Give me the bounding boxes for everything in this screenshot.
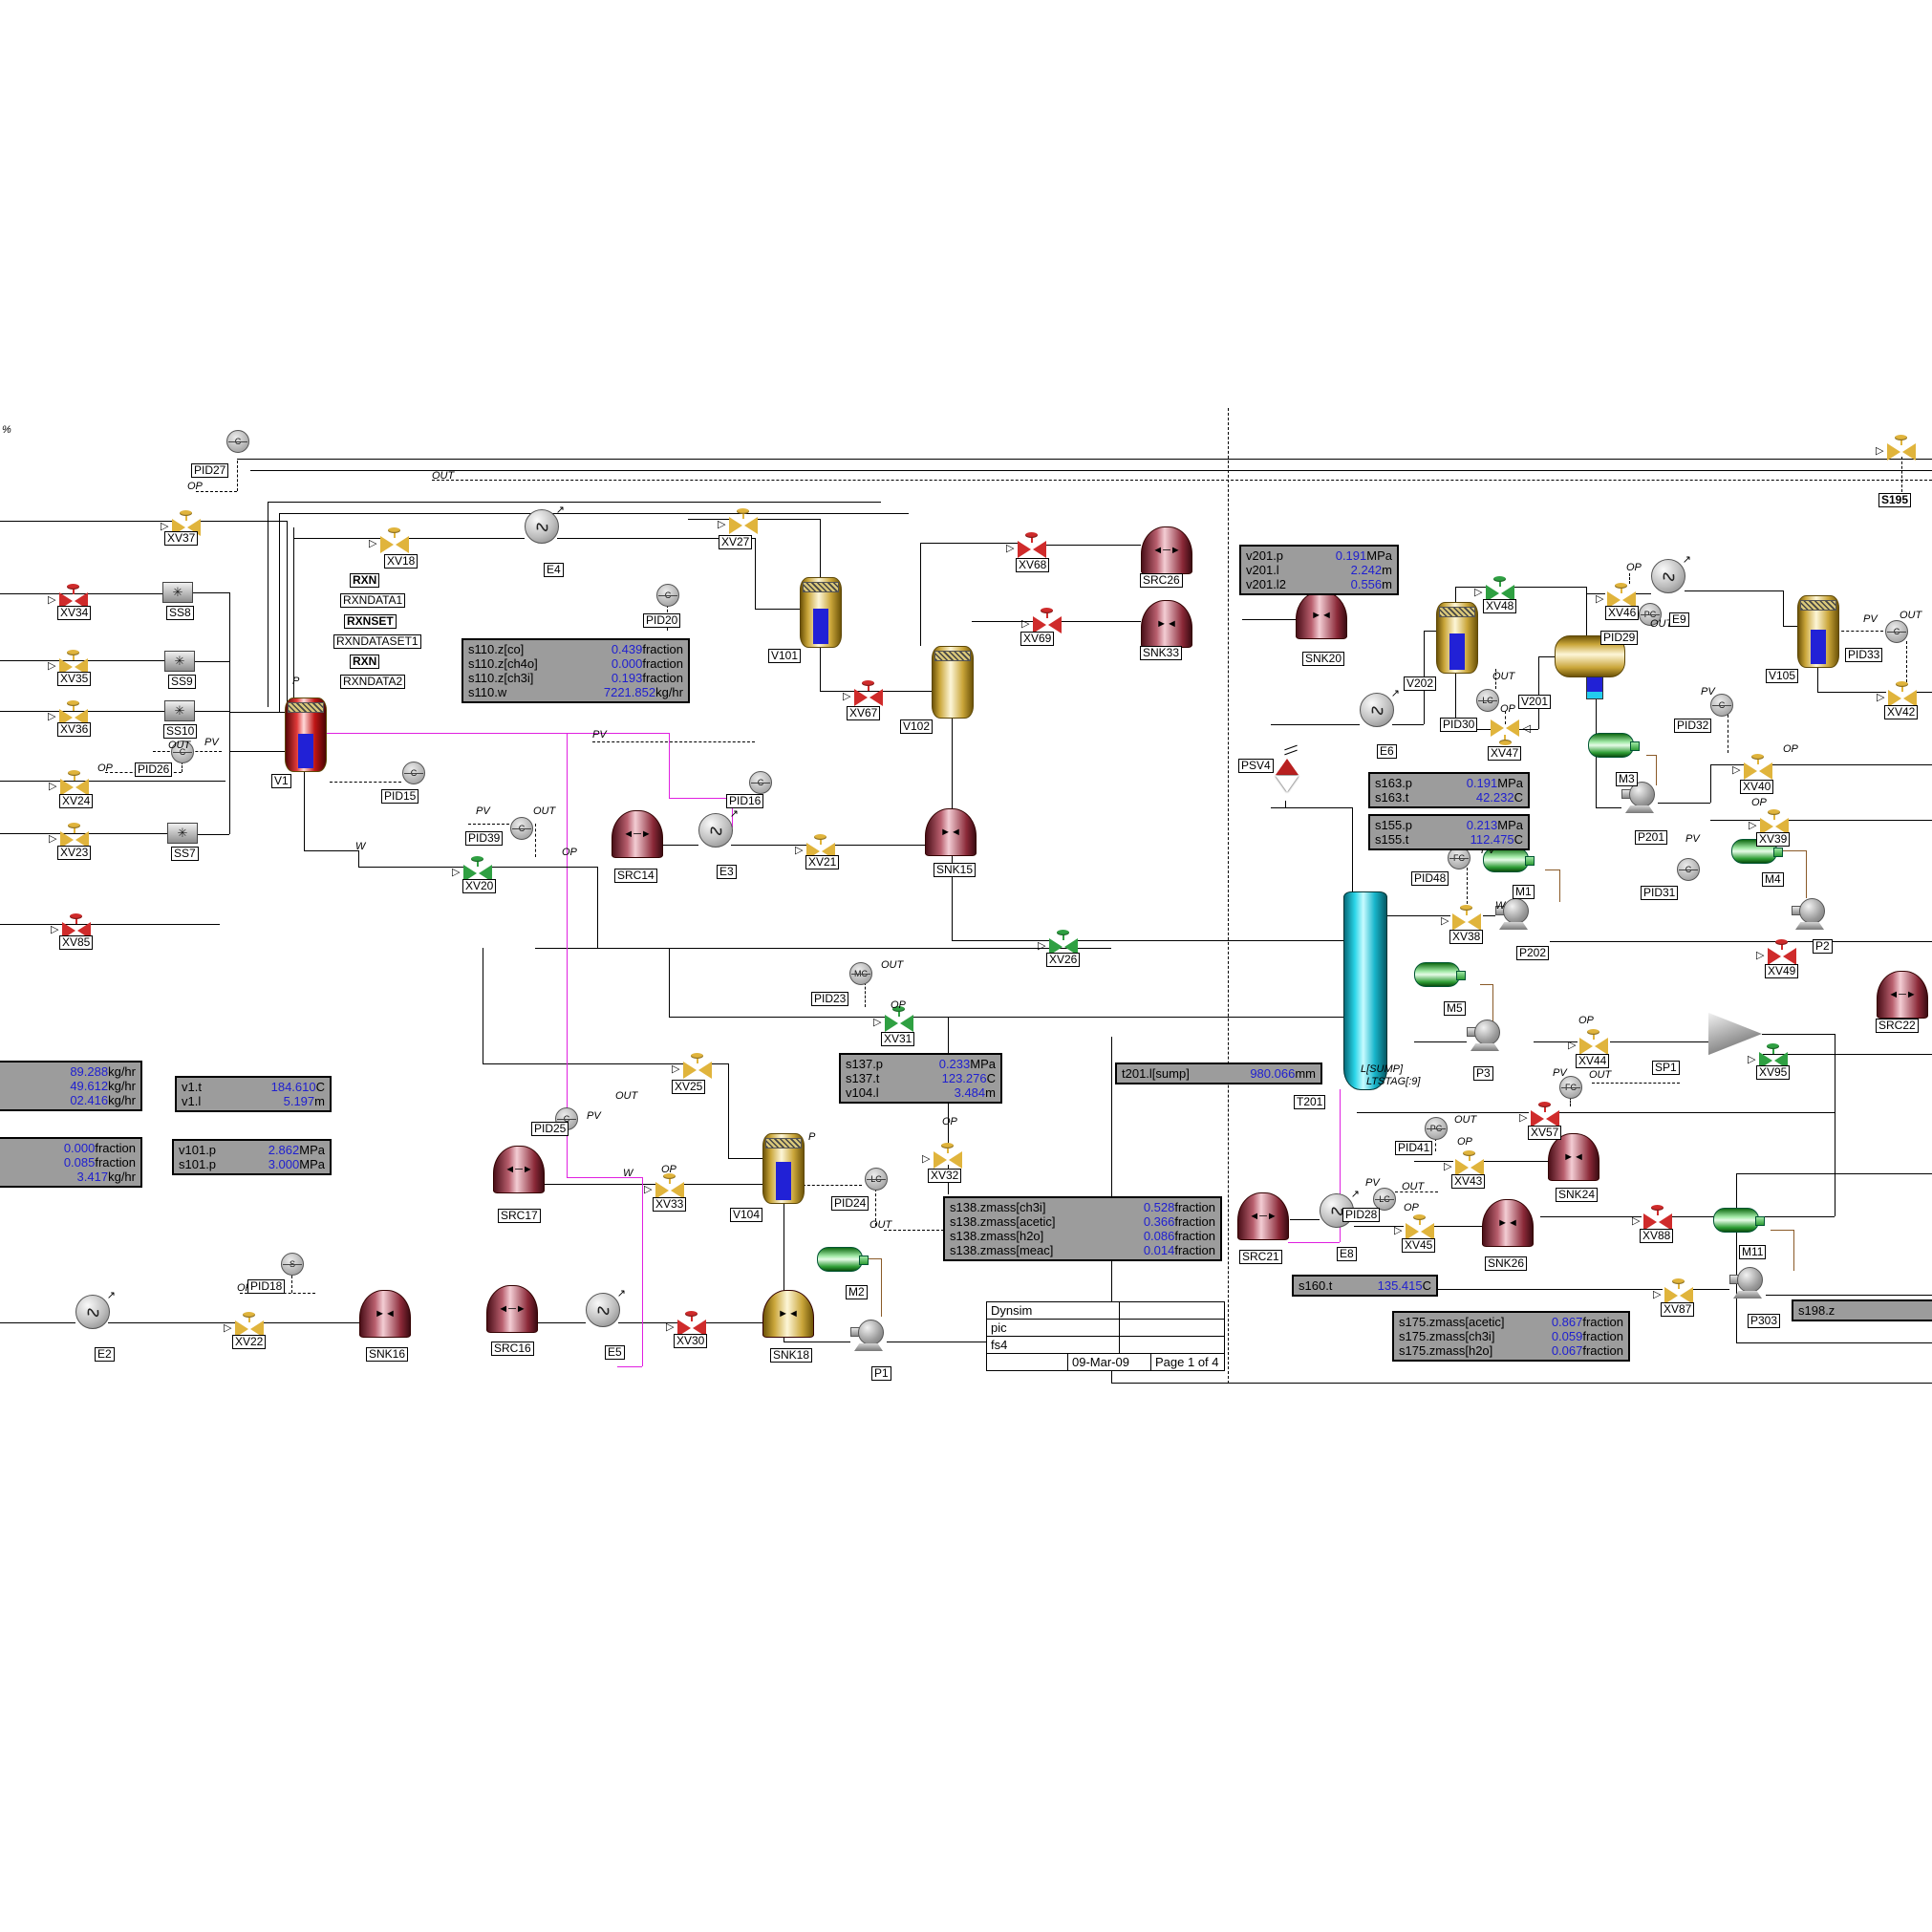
databox-value: 0.191 [1336,548,1367,563]
valve-xv25[interactable]: ▷ [683,1054,712,1079]
exchanger-coil-icon: ∿ [1657,562,1680,590]
motor-m2[interactable] [817,1247,863,1272]
connector-icon: ▷ [1749,819,1756,831]
liquid-level-icon [298,734,313,768]
source-src14[interactable]: ◄─► [612,810,663,858]
tag-label-xv88: XV88 [1640,1229,1673,1243]
annotation-text: PV [1365,1177,1380,1189]
controller-line-icon [228,441,247,442]
tag-label-e4: E4 [544,563,564,577]
controller-pid20[interactable]: C [656,584,679,607]
databox-value: 0.366 [1144,1214,1175,1229]
source-src22[interactable]: ◄─► [1877,971,1928,1019]
controller-line-icon [867,1179,886,1180]
controller-pid39[interactable]: C [510,817,533,840]
databox-unit: fraction [1582,1329,1623,1343]
pipe-line [920,543,921,646]
tag-label-m3: M3 [1616,772,1638,786]
block-label-rxnset[interactable]: RXNSET [344,614,397,629]
databox-unit: C [1514,832,1523,847]
sink-snk16[interactable]: ►◄ [359,1290,411,1338]
annotation-text: OP [187,481,203,492]
heat-exchanger-e5[interactable]: ∿↗ [586,1293,620,1327]
databox-label: s110.z[co] [468,642,533,656]
databox-unit: kg/hr [108,1064,136,1079]
databox-unit: C [316,1080,325,1094]
sink-snk26[interactable]: ►◄ [1482,1199,1534,1247]
valve-xv69[interactable]: ▷ [1033,609,1062,633]
block-label-rxndata1[interactable]: RXNDATA1 [340,593,405,608]
pipe-line [1062,621,1141,622]
annotation-text: OUT [533,805,555,817]
tag-label-pid24: PID24 [831,1196,869,1211]
sink-snk20[interactable]: ►◄ [1296,591,1347,639]
tag-label-xv67: XV67 [847,706,880,720]
databox-label: s138.zmass[meac] [950,1243,1063,1257]
valve-body-icon [1452,913,1466,931]
connector-icon: ▷ [1006,542,1014,554]
vessel-v102[interactable] [932,646,974,719]
databox-unit: C [987,1071,996,1085]
pipe-line [0,924,220,925]
vessel-v101[interactable] [800,577,842,648]
tag-label-ss10: SS10 [163,724,197,739]
sink-snk24[interactable]: ►◄ [1548,1133,1599,1181]
signal-line [432,480,1932,481]
controller-pid15[interactable]: C [402,762,425,784]
motor-nozzle-icon [1630,741,1640,751]
tag-label-xv23: XV23 [57,846,91,860]
splitter-sp1[interactable] [1708,1012,1762,1056]
databox-s198[interactable]: s198.z [1792,1299,1932,1321]
databox-label: s155.p [1375,818,1422,832]
databox-s175[interactable]: s175.zmass[acetic]0.867fractions175.zmas… [1392,1311,1630,1362]
annotation-text: OP [1500,703,1515,715]
databox-frac-left[interactable]: 0.000fraction0.085fraction3.417kg/hr [0,1137,142,1188]
annotation-text: W [1495,900,1505,912]
tag-label-p3: P3 [1473,1066,1493,1081]
connector-icon: ▷ [51,923,58,935]
valve-body-icon [396,536,409,553]
tag-label-xv18: XV18 [384,554,418,569]
source-src16[interactable]: ◄─► [486,1285,538,1333]
valve-body-icon [737,508,749,514]
utility-line [881,1258,882,1317]
valve-body-icon [862,680,874,686]
databox-label: s163.p [1375,776,1422,790]
vessel-v104[interactable] [762,1133,805,1204]
databox-value: 0.085 [64,1155,96,1170]
databox-unit: MPa [1366,548,1392,563]
connector-icon: ▷ [49,780,56,792]
databox-flow-left[interactable]: 89.288kg/hr49.612kg/hr02.416kg/hr [0,1061,142,1111]
block-label-s195[interactable]: S195 [1878,493,1911,507]
tag-label-v1: V1 [271,774,291,788]
pipe-line [201,521,287,522]
controller-pid23[interactable]: MC [849,962,872,985]
annotation-text: PV [592,729,607,741]
exchanger-arrow-icon: ↗ [617,1287,626,1299]
databox-label: s138.zmass[h2o] [950,1229,1053,1243]
tag-label-xv57: XV57 [1528,1126,1561,1140]
vessel-v105[interactable] [1797,595,1839,668]
connector-icon: ▷ [224,1321,231,1334]
vessel-v202[interactable] [1436,602,1478,674]
databox-value: 02.416 [70,1093,108,1107]
tag-label-m4: M4 [1762,872,1784,887]
pipe-line [728,1158,762,1159]
databox-unit: kg/hr [108,1093,136,1107]
sink-snk18[interactable]: ►◄ [762,1290,814,1338]
pipe-line [409,538,525,539]
pipe-line [1424,631,1436,632]
valve-xv24[interactable]: ▷ [60,771,89,796]
tag-label-xv40: XV40 [1740,780,1773,794]
annotation-text: OP [942,1116,957,1127]
databox-v101[interactable]: v101.p2.862MPas101.p3.000MPa [172,1139,332,1175]
stream-splitter-ss10[interactable]: ✳ [164,700,195,721]
databox-value: 0.867 [1552,1315,1583,1329]
pipe-line [820,519,821,577]
valve-xv27[interactable]: ▷ [729,509,758,534]
databox-label: s110.z[ch4o] [468,656,547,671]
pipe-line [1540,1216,1642,1217]
connector-icon: ▷ [718,518,725,530]
tag-label-xv39: XV39 [1756,832,1790,847]
pipe-line [1484,1161,1548,1162]
controller-pid31[interactable]: C [1677,858,1700,881]
valve-body-icon [744,517,758,534]
valve-xv38[interactable]: ▷ [1452,906,1481,931]
heat-exchanger-e3[interactable]: ∿↗ [698,813,733,848]
exchanger-arrow-icon: ↗ [107,1289,116,1301]
pipe-line [1710,764,1711,803]
pipe-line [1111,1383,1932,1384]
connector-icon: ▷ [452,866,460,878]
databox-label: s175.zmass[ch3i] [1399,1329,1504,1343]
pump-p2[interactable] [1792,898,1828,929]
controller-pid24[interactable]: LC [865,1168,888,1191]
valve-xv47[interactable]: ▷ [1491,719,1519,744]
tag-label-e9: E9 [1669,612,1689,627]
pipe-line [108,1322,235,1323]
databox-unit: fraction [642,656,683,671]
valve-body-icon [1895,435,1907,440]
valve-body-icon [1767,1043,1779,1049]
signal-line [1629,573,1630,584]
databox-value: 0.086 [1144,1229,1175,1243]
exchanger-coil-icon: ∿ [591,1296,614,1323]
exchanger-arrow-icon: ↗ [1683,553,1691,566]
annotation-text: OUT [615,1090,637,1102]
databox-t201[interactable]: t201.l[sump]980.066mm [1115,1063,1322,1084]
pipe-line [755,609,800,610]
signal-line [1906,641,1907,682]
utility-line [1492,984,1493,1022]
valve-valve[interactable]: ▷ [1887,436,1916,461]
valve-xv87[interactable]: ▷ [1664,1279,1693,1304]
pipe-line [1271,724,1360,725]
controller-pid18[interactable]: S [281,1253,304,1276]
controller-pid41[interactable]: PC [1425,1117,1448,1140]
block-label-rxndata2[interactable]: RXNDATA2 [340,675,405,689]
tag-label-pid18: PID18 [247,1279,285,1294]
title-block-drawing: pic [987,1320,1120,1336]
valve-xv40[interactable]: ▷ [1744,755,1772,780]
controller-fc[interactable]: FC [1559,1076,1582,1099]
annotation-text: OUT [432,470,454,482]
pipe-line [536,1322,586,1323]
valve-body-icon [1460,905,1472,911]
connector-icon: ▷ [1653,1288,1661,1300]
sink-snk33[interactable]: ►◄ [1141,600,1192,648]
pump-p303[interactable] [1729,1267,1766,1298]
flowsheet-canvas: Dynsim pic fs4 09-Mar-09 Page 1 of 4 %OP… [0,0,1932,1932]
valve-xv44[interactable]: ▷ [1579,1030,1608,1055]
heat-exchanger-e4[interactable]: ∿↗ [525,509,559,544]
tag-label-src14: SRC14 [614,869,657,883]
source-src17[interactable]: ◄─► [493,1146,545,1193]
connector-icon: ▷ [1394,1224,1402,1236]
pipe-line [684,1184,762,1185]
databox-value: 89.288 [70,1064,108,1079]
connector-icon: ▷ [873,1016,881,1028]
heat-exchanger-e9[interactable]: ∿↗ [1651,559,1685,593]
databox-label: s160.t [1299,1278,1342,1293]
connector-icon: ▷ [48,593,55,606]
valve-body-icon [683,1062,697,1079]
databox-s137[interactable]: s137.p0.233MPas137.t123.276Cv104.l3.484m [839,1053,1002,1104]
databox-unit: fraction [1582,1315,1623,1329]
valve-xv45[interactable]: ▷ [1406,1215,1434,1240]
connector-icon: ▷ [644,1183,652,1195]
stream-splitter-ss7[interactable]: ✳ [167,823,198,844]
block-label-rxndataset1[interactable]: RXNDATASET1 [333,634,421,649]
motor-m3[interactable] [1588,733,1634,758]
databox-unit: kg/hr [655,685,683,699]
valve-xv32[interactable]: ▷ [934,1144,962,1169]
databox-value: 112.475 [1470,832,1514,847]
tag-label-xv47: XV47 [1488,746,1521,761]
exchanger-coil-icon: ∿ [1365,696,1388,723]
pipe-line [1817,666,1818,692]
databox-value: 123.276 [942,1071,987,1085]
controller-pid16[interactable]: C [749,771,772,794]
databox-value: 184.610 [271,1080,316,1094]
source-src26[interactable]: ◄─► [1141,526,1192,574]
tag-label-xv35: XV35 [57,672,91,686]
databox-label: v201.l2 [1246,577,1296,591]
source-src21[interactable]: ◄─► [1237,1192,1289,1240]
tag-label-pid48: PID48 [1411,871,1449,886]
databox-value: 0.000 [612,656,643,671]
valve-body-icon [1744,762,1757,780]
databox-value: 0.059 [1552,1329,1583,1343]
controller-pid27[interactable]: C [226,430,249,453]
utility-line [1771,1230,1793,1231]
databox-value: 7221.852 [604,685,655,699]
utility-line [1480,984,1492,985]
connector-icon: ▷ [1519,1111,1527,1124]
tag-label-sp1: SP1 [1652,1061,1680,1075]
pipe-line [1046,545,1141,546]
valve-xv57[interactable]: ▷ [1531,1103,1559,1127]
pipe-line [268,502,881,503]
valve-body-icon [68,823,80,828]
databox-s110[interactable]: s110.z[co]0.439fractions110.z[ch4o]0.000… [462,638,690,703]
databox-label: v1.l [182,1094,210,1108]
pipe-line [1078,940,1343,941]
databox-s163[interactable]: s163.p0.191MPas163.t42.232C [1368,772,1530,808]
vessel-hatch-icon [803,582,839,592]
pipe-line [264,1322,359,1323]
tag-label-xv87: XV87 [1661,1302,1694,1317]
annotation-text: OP [1578,1015,1594,1026]
stream-splitter-ss9[interactable]: ✳ [164,651,195,672]
column-t201[interactable] [1343,891,1387,1090]
relief-valve-icon [1284,750,1297,756]
valve-body-icon [67,584,79,590]
vessel-boot-icon [1586,676,1603,699]
signal-line [1435,1138,1436,1151]
annotation-text: P [808,1131,815,1143]
databox-value: 3.000 [268,1157,300,1171]
controller-line-icon [658,595,677,596]
pipe-line [1685,590,1783,591]
valve-body-icon [67,650,79,655]
valve-body-icon [854,689,868,706]
pump-p1[interactable] [850,1320,887,1350]
motor-m11[interactable] [1713,1208,1759,1233]
databox-label: v201.l [1246,563,1289,577]
valve-xv68[interactable]: ▷ [1018,533,1046,558]
tag-label-pid39: PID39 [465,831,503,846]
controller-pid30[interactable]: LC [1476,689,1499,712]
pump-pbody-icon [858,1320,884,1345]
pipe-line [597,867,598,948]
valve-xv33[interactable]: ▷ [655,1174,684,1199]
title-block-page: Page 1 of 4 [1151,1354,1224,1370]
databox-s138[interactable]: s138.zmass[ch3i]0.528fractions138.zmass[… [943,1196,1222,1261]
valve-xv42[interactable]: ▷ [1888,682,1917,707]
controller-pid33[interactable]: C [1885,620,1908,643]
connector-icon: ▷ [1732,763,1740,776]
pump-pbase-icon [1795,922,1824,930]
valve-body-icon [1506,719,1519,737]
stream-line-magenta [669,733,670,798]
stream-splitter-ss8[interactable]: ✳ [162,582,193,603]
pipe-line [1434,1226,1482,1227]
databox-value: 0.193 [612,671,643,685]
pipe-line [492,867,597,868]
controller-line-icon [1679,869,1698,870]
exchanger-arrow-icon: ↗ [556,504,565,516]
relief-valve-psv4[interactable] [1271,753,1309,797]
valve-xv18[interactable]: ▷ [380,528,409,553]
valve-xv67[interactable]: ▷ [854,681,883,706]
databox-unit: fraction [95,1155,136,1170]
tag-label-xv48: XV48 [1483,599,1516,613]
title-block-date: 09-Mar-09 [1068,1354,1151,1370]
pipe-line [661,845,698,846]
databox-s160[interactable]: s160.t135.415C [1292,1275,1438,1297]
pipe-line [1414,1041,1467,1042]
databox-unit: MPa [299,1143,325,1157]
valve-body-icon [68,770,80,776]
tag-label-xv32: XV32 [928,1169,961,1183]
tag-label-xv43: XV43 [1451,1174,1485,1189]
controller-line-icon [1561,1087,1580,1088]
databox-label: s198.z [1798,1303,1844,1318]
connector-icon: ▷ [666,1320,674,1333]
pipe-line [758,519,820,520]
tag-label-t201: T201 [1294,1095,1325,1109]
valve-xv49[interactable]: ▷ [1768,940,1796,965]
annotation-text: L[SUMP] [1361,1063,1403,1075]
tag-label-pid29: PID29 [1600,631,1638,645]
connector-icon: ▷ [48,659,55,672]
tag-label-p1: P1 [871,1366,891,1381]
connector-icon: ▷ [48,710,55,722]
valve-body-icon [1896,681,1908,687]
motor-m5[interactable] [1414,962,1460,987]
valve-xv43[interactable]: ▷ [1455,1151,1484,1176]
pipe-line [1693,1289,1729,1290]
block-label-rxn[interactable]: RXN [350,655,379,669]
tag-label-pid27: PID27 [191,463,228,478]
pump-p3[interactable] [1467,1020,1503,1050]
valve-body-icon [1025,532,1038,538]
pump-pbase-icon [1499,922,1528,930]
valve-body-icon [1587,1029,1599,1035]
annotation-text: OP [562,847,577,858]
databox-v201[interactable]: v201.p0.191MPav201.l2.242mv201.l20.556m [1239,545,1399,595]
block-label-rxn[interactable]: RXN [350,573,379,588]
valve-body-icon [934,1151,947,1169]
controller-line-icon [557,1119,576,1120]
valve-xv88[interactable]: ▷ [1643,1206,1672,1231]
connector-icon: ▷ [1474,586,1482,598]
connector-icon: ▷ [922,1152,930,1165]
tag-label-xv22: XV22 [232,1335,266,1349]
tag-label-v104: V104 [730,1208,762,1222]
pipe-line [1762,1034,1835,1035]
valve-body-icon [729,517,742,534]
valve-body-icon [1783,948,1796,965]
databox-v1[interactable]: v1.t184.610Cv1.l5.197m [175,1076,332,1112]
pipe-line [728,1063,729,1158]
tag-label-pid41: PID41 [1395,1141,1432,1155]
tag-label-ss9: SS9 [168,675,196,689]
databox-s155[interactable]: s155.p0.213MPas155.t112.475C [1368,814,1530,850]
tag-label-psv4: PSV4 [1238,759,1274,773]
heat-exchanger-e2[interactable]: ∿↗ [75,1295,110,1329]
sink-snk15[interactable]: ►◄ [925,808,977,856]
vessel-v1[interactable] [285,698,327,772]
pipe-line [913,1017,1343,1018]
databox-label: v1.t [182,1080,211,1094]
pump-pbase-icon [1470,1043,1499,1051]
databox-unit: MPa [1497,776,1523,790]
databox-unit: m [985,1085,996,1100]
controller-line-icon [1449,858,1469,859]
heat-exchanger-e6[interactable]: ∿↗ [1360,693,1394,727]
pipe-line [1285,801,1286,807]
tag-label-e2: E2 [95,1347,115,1362]
signal-line [1901,457,1902,492]
tag-label-m1: M1 [1513,885,1535,899]
controller-line-icon [1641,614,1660,615]
